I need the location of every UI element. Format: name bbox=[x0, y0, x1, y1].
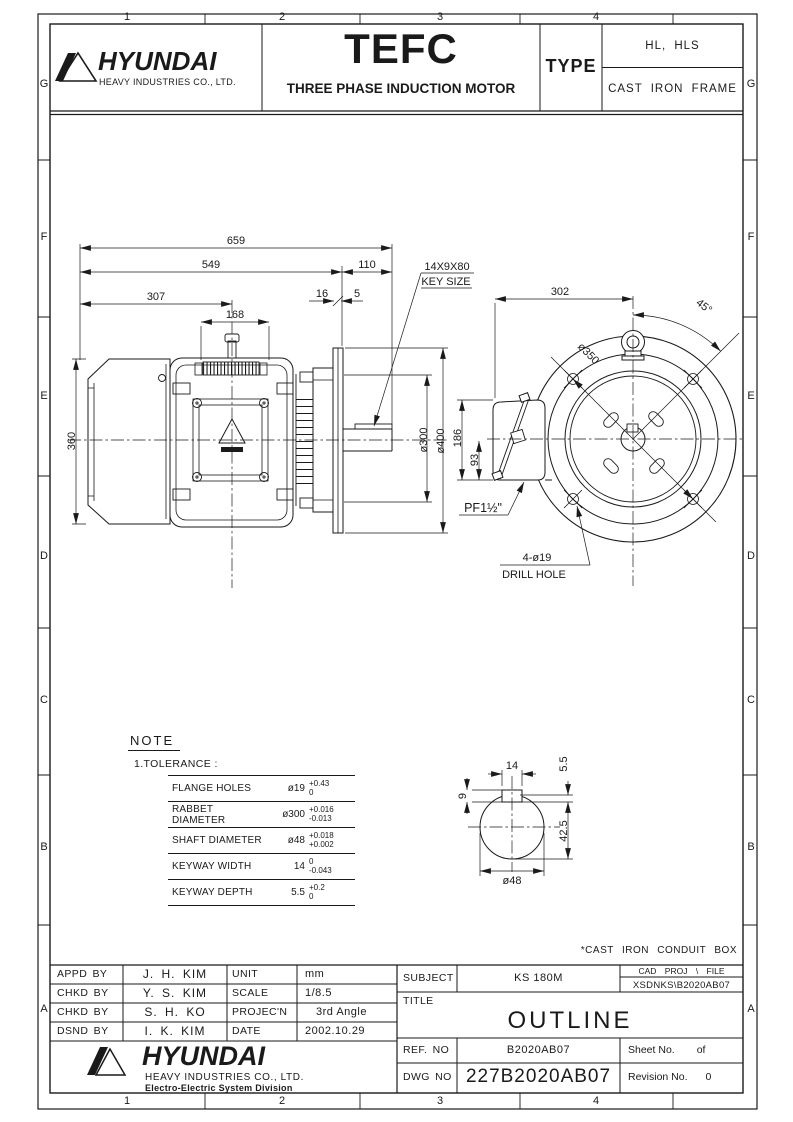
callout-drill-2: DRILL HOLE bbox=[502, 569, 566, 581]
scale-label: SCALE bbox=[232, 987, 268, 999]
motor-body bbox=[159, 334, 294, 527]
tolerance-value: 14 bbox=[267, 861, 305, 872]
projection-value: 3rd Angle bbox=[316, 1006, 367, 1018]
grid-col-4-top: 4 bbox=[586, 11, 606, 23]
drawing-sheet: { "border": { "cols": ["1", "2", "3", "4… bbox=[0, 0, 793, 1122]
tolerance-table: FLANGE HOLES ø19 +0.430 RABBET DIAMETER … bbox=[168, 775, 355, 906]
product-title: TEFC bbox=[262, 28, 540, 70]
tolerance-lower: -0.013 bbox=[309, 815, 355, 824]
side-view-dimensions bbox=[72, 244, 474, 533]
grid-row-a-right: A bbox=[745, 1003, 757, 1015]
chkd-by-label: CHKD BY bbox=[57, 987, 108, 999]
grid-row-d-right: D bbox=[745, 550, 757, 562]
dsnd-by-label: DSND BY bbox=[57, 1025, 108, 1037]
grid-col-3-top: 3 bbox=[430, 11, 450, 23]
dim-110: 110 bbox=[358, 259, 376, 271]
unit-value: mm bbox=[305, 968, 324, 980]
cad-file-value: XSDNKS\B2020AB07 bbox=[622, 980, 741, 991]
type-label: TYPE bbox=[540, 56, 602, 77]
callout-drill-1: 4-ø19 bbox=[523, 552, 552, 564]
revision-value: 0 bbox=[706, 1071, 712, 1083]
grid-row-g-left: G bbox=[38, 78, 50, 90]
sheet-no: Sheet No. of bbox=[628, 1044, 736, 1056]
titleblock-brand-sub: HEAVY INDUSTRIES CO., LTD. bbox=[145, 1072, 304, 1083]
appd-by-label: APPD BY bbox=[57, 968, 107, 980]
header-brand-sub: HEAVY INDUSTRIES CO., LTD. bbox=[99, 77, 236, 87]
scale-value: 1/8.5 bbox=[305, 987, 332, 999]
chkd-by-name: Y. S. KIM bbox=[123, 986, 227, 1000]
projection-label: PROJEC'N bbox=[232, 1006, 287, 1018]
callout-keysize-2: KEY SIZE bbox=[421, 276, 470, 288]
sheet-no-of: of bbox=[697, 1044, 706, 1056]
grid-col-1-bottom: 1 bbox=[117, 1095, 137, 1107]
tolerance-lower: 0 bbox=[309, 893, 355, 902]
grid-row-e-left: E bbox=[38, 390, 50, 402]
body-slots bbox=[173, 383, 293, 500]
grid-row-d-left: D bbox=[38, 550, 50, 562]
drain-plug bbox=[159, 375, 166, 382]
grid-col-2-bottom: 2 bbox=[272, 1095, 292, 1107]
tolerance-name: RABBET DIAMETER bbox=[168, 804, 267, 826]
dsnd-by-name: I. K. KIM bbox=[123, 1024, 227, 1038]
tolerance-row: FLANGE HOLES ø19 +0.430 bbox=[168, 775, 355, 801]
tolerance-name: KEYWAY WIDTH bbox=[168, 861, 267, 872]
title-label: TITLE bbox=[403, 995, 434, 1007]
appd-by-name: J. H. KIM bbox=[123, 967, 227, 981]
grid-col-4-bottom: 4 bbox=[586, 1095, 606, 1107]
shaft-dim-dia48: ø48 bbox=[503, 875, 522, 887]
titleblock-brand-division: Electro-Electric System Division bbox=[145, 1083, 293, 1093]
note-title: NOTE bbox=[128, 733, 180, 751]
tolerance-upper: +0.2 bbox=[309, 884, 355, 893]
dim-16: 16 bbox=[316, 288, 328, 300]
tolerance-limits: +0.430 bbox=[305, 780, 355, 797]
tolerance-value: ø48 bbox=[267, 835, 305, 846]
grid-col-2-top: 2 bbox=[272, 11, 292, 23]
shaft bbox=[343, 424, 392, 451]
dim-dia350: ø350 bbox=[575, 341, 601, 367]
dim-549: 549 bbox=[202, 259, 220, 271]
tolerance-value: 5.5 bbox=[267, 887, 305, 898]
product-subtitle: THREE PHASE INDUCTION MOTOR bbox=[262, 81, 540, 96]
subject-label: SUBJECT bbox=[403, 972, 454, 984]
grid-row-a-left: A bbox=[38, 1003, 50, 1015]
conduit-box-note: *CAST IRON CONDUIT BOX bbox=[581, 945, 737, 956]
shaft-dim-9: 9 bbox=[457, 793, 469, 799]
dim-302: 302 bbox=[551, 286, 569, 298]
tolerance-lower: +0.002 bbox=[309, 841, 355, 850]
dim-186: 186 bbox=[452, 429, 464, 447]
type-value-2: CAST IRON FRAME bbox=[602, 83, 743, 95]
grid-col-1-top: 1 bbox=[117, 11, 137, 23]
dwg-no-value: 227B2020AB07 bbox=[457, 1066, 620, 1088]
tolerance-lower: 0 bbox=[309, 789, 355, 798]
tolerance-name: FLANGE HOLES bbox=[168, 783, 267, 794]
grid-col-3-bottom: 3 bbox=[430, 1095, 450, 1107]
tolerance-value: ø19 bbox=[267, 783, 305, 794]
dim-168: 168 bbox=[226, 309, 244, 321]
grid-row-c-left: C bbox=[38, 694, 50, 706]
tolerance-limits: +0.016-0.013 bbox=[305, 806, 355, 823]
dim-360: 360 bbox=[66, 432, 78, 450]
revision-no: Revision No. 0 bbox=[628, 1071, 738, 1083]
chkd-by-label: CHKD BY bbox=[57, 1006, 108, 1018]
dim-93: 93 bbox=[469, 454, 481, 466]
flange-face-view bbox=[487, 296, 744, 586]
shaft-key bbox=[355, 424, 392, 429]
fan-cover bbox=[88, 359, 170, 524]
tolerance-limits: 0-0.043 bbox=[305, 858, 355, 875]
date-value: 2002.10.29 bbox=[305, 1025, 365, 1037]
dimension-labels: 659 549 110 307 168 16 5 360 ø300 ø400 1… bbox=[66, 235, 714, 887]
grid-row-c-right: C bbox=[745, 694, 757, 706]
tolerance-row: RABBET DIAMETER ø300 +0.016-0.013 bbox=[168, 801, 355, 827]
revision-label: Revision No. bbox=[628, 1071, 688, 1083]
grid-row-f-left: F bbox=[38, 231, 50, 243]
mounting-flange-side bbox=[333, 348, 343, 533]
tolerance-row: KEYWAY DEPTH 5.5 +0.20 bbox=[168, 879, 355, 906]
tolerance-upper: +0.43 bbox=[309, 780, 355, 789]
tolerance-value: ø300 bbox=[267, 809, 305, 820]
conduit-box bbox=[492, 393, 552, 481]
ref-no-label: REF. NO bbox=[403, 1044, 449, 1056]
tolerance-limits: +0.20 bbox=[305, 884, 355, 901]
callout-pf: PF1½" bbox=[464, 501, 502, 515]
grid-row-b-left: B bbox=[38, 841, 50, 853]
motor-side-view bbox=[68, 300, 447, 588]
subject-value: KS 180M bbox=[457, 972, 620, 984]
tolerance-row: KEYWAY WIDTH 14 0-0.043 bbox=[168, 853, 355, 879]
tolerance-limits: +0.018+0.002 bbox=[305, 832, 355, 849]
type-value-1: HL, HLS bbox=[602, 40, 743, 52]
header-brand: HYUNDAI bbox=[98, 46, 216, 77]
tolerance-name: KEYWAY DEPTH bbox=[168, 887, 267, 898]
tolerance-name: SHAFT DIAMETER bbox=[168, 835, 267, 846]
shaft-dim-14: 14 bbox=[506, 760, 518, 772]
grid-row-f-right: F bbox=[745, 231, 757, 243]
callout-keysize-1: 14X9X80 bbox=[424, 261, 469, 273]
titleblock-brand: HYUNDAI bbox=[142, 1041, 265, 1072]
drawing-title: OUTLINE bbox=[397, 1007, 743, 1035]
vent-slots bbox=[602, 410, 666, 475]
dim-5: 5 bbox=[354, 288, 360, 300]
dim-45: 45° bbox=[694, 297, 715, 317]
dim-659: 659 bbox=[227, 235, 245, 247]
chkd-by-name: S. H. KO bbox=[123, 1005, 227, 1019]
titleblock-logo-icon bbox=[87, 1047, 125, 1075]
dwg-no-label: DWG NO bbox=[403, 1071, 452, 1083]
ref-no-value: B2020AB07 bbox=[457, 1044, 620, 1056]
cad-proj-file-header: CAD PROJ \ FILE bbox=[622, 966, 741, 976]
dim-dia400: ø400 bbox=[435, 428, 447, 453]
unit-label: UNIT bbox=[232, 968, 258, 980]
grid-row-g-right: G bbox=[745, 78, 757, 90]
shaft-dim-55: 5.5 bbox=[558, 756, 570, 771]
sheet-no-label: Sheet No. bbox=[628, 1044, 675, 1056]
tolerance-lower: -0.043 bbox=[309, 867, 355, 876]
grid-row-b-right: B bbox=[745, 841, 757, 853]
note-item: 1.TOLERANCE : bbox=[134, 758, 218, 770]
dim-307: 307 bbox=[147, 291, 165, 303]
tolerance-row: SHAFT DIAMETER ø48 +0.018+0.002 bbox=[168, 827, 355, 853]
date-label: DATE bbox=[232, 1025, 261, 1037]
dim-dia300: ø300 bbox=[418, 427, 430, 452]
shaft-dim-425: 42.5 bbox=[558, 820, 570, 841]
header-logo-icon bbox=[55, 53, 96, 81]
grid-row-e-right: E bbox=[745, 390, 757, 402]
